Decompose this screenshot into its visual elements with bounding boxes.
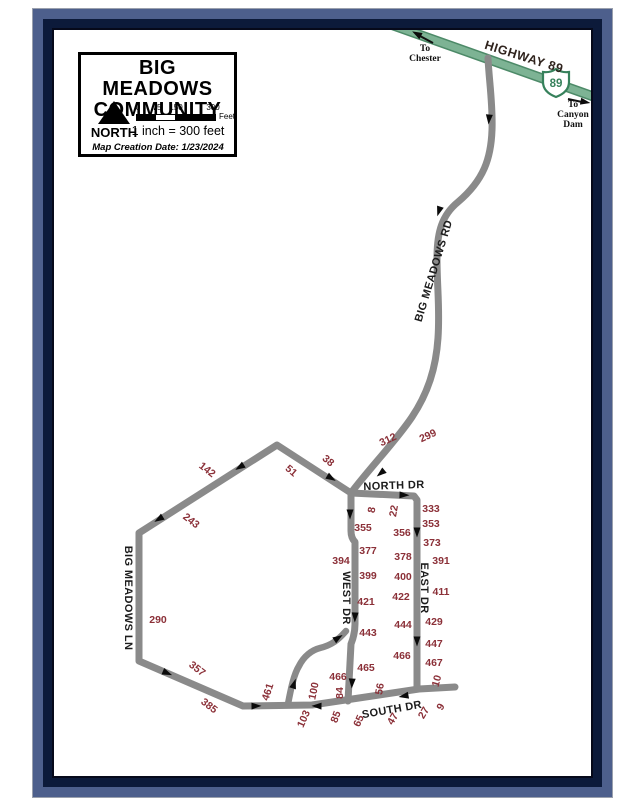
road-label-east-dr: EAST DR (418, 562, 430, 613)
address-label: 400 (394, 571, 412, 583)
address-label: 84 (334, 687, 346, 699)
address-label: 444 (394, 619, 412, 631)
address-label: 290 (149, 614, 167, 626)
road-label-big-meadows-rd: BIG MEADOWS RD (413, 219, 455, 324)
address-label: 466 (329, 671, 347, 683)
address-label: 394 (332, 555, 350, 567)
to-canyon-line2: Canyon (557, 110, 589, 120)
inner-frame: 89 NORTH DR SOUTH DR WEST DR EAST DR BIG… (43, 19, 602, 787)
scale-bar-middle-segment (156, 115, 175, 120)
address-label: 56 (373, 682, 387, 696)
scale-bar (136, 114, 216, 121)
address-label: 422 (392, 591, 410, 603)
address-label: 466 (393, 650, 411, 662)
address-label: 461 (260, 682, 277, 702)
scale-tick-0: 0 (136, 103, 140, 112)
map-area: 89 NORTH DR SOUTH DR WEST DR EAST DR BIG… (52, 28, 593, 778)
address-label: 356 (393, 527, 411, 539)
to-chester-line2: Chester (409, 54, 441, 64)
address-label: 467 (425, 657, 443, 669)
address-label: 142 (196, 460, 217, 480)
address-label: 22 (387, 504, 401, 518)
address-label: 377 (359, 545, 377, 557)
address-label: 85 (328, 709, 343, 724)
scale-tick-300: 300 (206, 103, 219, 112)
address-label: 391 (432, 555, 450, 567)
north-arrow-icon (98, 101, 130, 124)
address-label: 411 (433, 586, 450, 598)
address-label: 10 (430, 674, 445, 688)
address-label: 312 (378, 431, 399, 449)
address-label: 443 (359, 627, 377, 639)
address-label: 51 (283, 463, 300, 480)
address-label: 9 (434, 701, 447, 712)
scale-ratio-text: 1 inch = 300 feet (132, 124, 225, 138)
to-canyon-line1: To (557, 100, 589, 110)
address-label: 243 (180, 511, 201, 531)
to-canyon-line3: Dam (557, 120, 589, 130)
address-label: 399 (359, 570, 377, 582)
north-label: NORTH (91, 125, 137, 140)
map-creation-date: Map Creation Date: 1/23/2024 (92, 142, 223, 153)
road-label-big-meadows-ln: BIG MEADOWS LN (122, 546, 134, 651)
address-label: 429 (425, 616, 443, 628)
address-label: 385 (198, 696, 219, 716)
scale-unit-label: Feet (219, 112, 235, 121)
address-label: 465 (357, 662, 375, 674)
road-label-west-dr: WEST DR (340, 571, 352, 625)
address-label: 421 (357, 596, 375, 608)
address-label: 378 (394, 551, 412, 563)
address-label: 355 (354, 522, 372, 534)
to-chester-note: To Chester (409, 44, 441, 64)
address-label: 8 (366, 506, 379, 514)
highway-89-label: HIGHWAY 89 (483, 38, 565, 76)
to-canyon-dam-note: To Canyon Dam (557, 100, 589, 130)
address-label: 100 (306, 681, 321, 701)
address-label: 333 (422, 503, 440, 515)
address-label: 447 (425, 638, 443, 650)
address-label: 103 (295, 709, 313, 730)
legend-box: BIG MEADOWS COMMUNITY NORTH 0 75 150 300… (78, 52, 237, 157)
map-page: 89 NORTH DR SOUTH DR WEST DR EAST DR BIG… (0, 0, 625, 809)
address-label: 299 (418, 427, 439, 445)
road-label-north-dr: NORTH DR (363, 479, 425, 493)
legend-title-line1: BIG MEADOWS (81, 58, 234, 100)
outer-frame: 89 NORTH DR SOUTH DR WEST DR EAST DR BIG… (33, 9, 612, 797)
address-label: 357 (186, 659, 207, 679)
address-label: 373 (423, 537, 441, 549)
scale-tick-75: 75 (153, 103, 162, 112)
address-label: 353 (422, 518, 440, 530)
to-chester-line1: To (409, 44, 441, 54)
address-label: 38 (320, 453, 337, 470)
scale-tick-150: 150 (169, 103, 182, 112)
